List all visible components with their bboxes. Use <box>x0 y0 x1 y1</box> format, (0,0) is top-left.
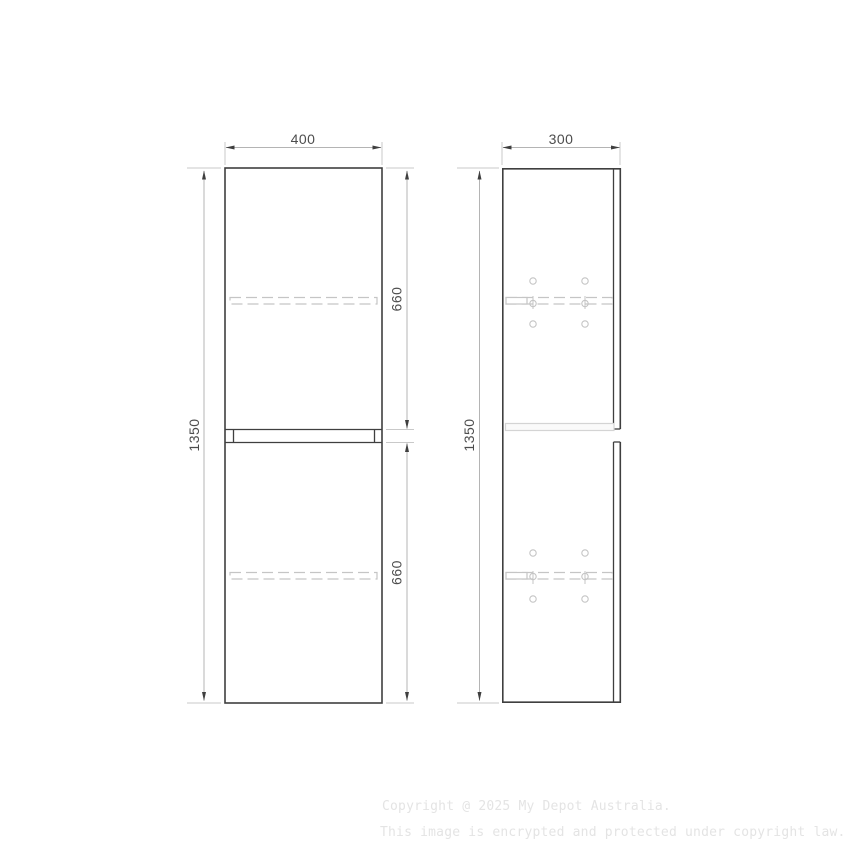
side-width-dimension: 300 <box>502 131 620 165</box>
front-height-label: 1350 <box>186 418 202 451</box>
front-view: 400 1350 660 660 <box>186 131 414 703</box>
side-middle-shelf-edge <box>506 424 615 431</box>
arrowhead-up <box>478 171 482 180</box>
shelf-pin-hole <box>530 596 536 602</box>
watermark-line-2: This image is encrypted and protected un… <box>380 825 846 840</box>
side-view: 300 1350 <box>457 131 621 703</box>
side-upper-shelf-end <box>506 298 527 305</box>
front-width-label: 400 <box>291 131 316 147</box>
shelf-pin-hole <box>530 550 536 556</box>
front-cabinet-outline <box>225 168 382 703</box>
arrowhead-up <box>202 171 206 180</box>
watermark-line-1: Copyright @ 2025 My Depot Australia. <box>382 799 671 814</box>
arrowhead-down <box>405 420 409 429</box>
arrowhead-up <box>405 171 409 180</box>
arrowhead-down <box>478 692 482 701</box>
shelf-pin-hole <box>530 278 536 284</box>
cabinet-dimension-drawing: 400 1350 660 660 <box>0 0 850 850</box>
front-lower-door-dimension: 660 <box>386 443 414 704</box>
front-upper-door-dimension: 660 <box>386 168 414 430</box>
shelf-pin-hole <box>582 596 588 602</box>
arrowhead-right <box>611 146 620 150</box>
arrowhead-left <box>503 146 512 150</box>
watermark: Copyright @ 2025 My Depot Australia. Thi… <box>380 799 846 840</box>
front-height-dimension: 1350 <box>186 168 221 703</box>
front-upper-door-label: 660 <box>389 287 405 312</box>
shelf-pin-hole <box>530 321 536 327</box>
front-lower-door-label: 660 <box>389 560 405 585</box>
shelf-pin-hole <box>582 278 588 284</box>
arrowhead-up <box>405 443 409 452</box>
shelf-pin-hole <box>582 550 588 556</box>
arrowhead-down <box>202 692 206 701</box>
side-height-dimension: 1350 <box>457 168 499 703</box>
front-width-dimension: 400 <box>225 131 382 165</box>
side-height-label: 1350 <box>461 418 477 451</box>
side-width-label: 300 <box>549 131 574 147</box>
side-lower-shelf-end <box>506 573 527 580</box>
arrowhead-down <box>405 692 409 701</box>
shelf-pin-hole <box>582 321 588 327</box>
arrowhead-right <box>373 146 382 150</box>
technical-drawing-page: 400 1350 660 660 <box>0 0 850 850</box>
arrowhead-left <box>226 146 235 150</box>
